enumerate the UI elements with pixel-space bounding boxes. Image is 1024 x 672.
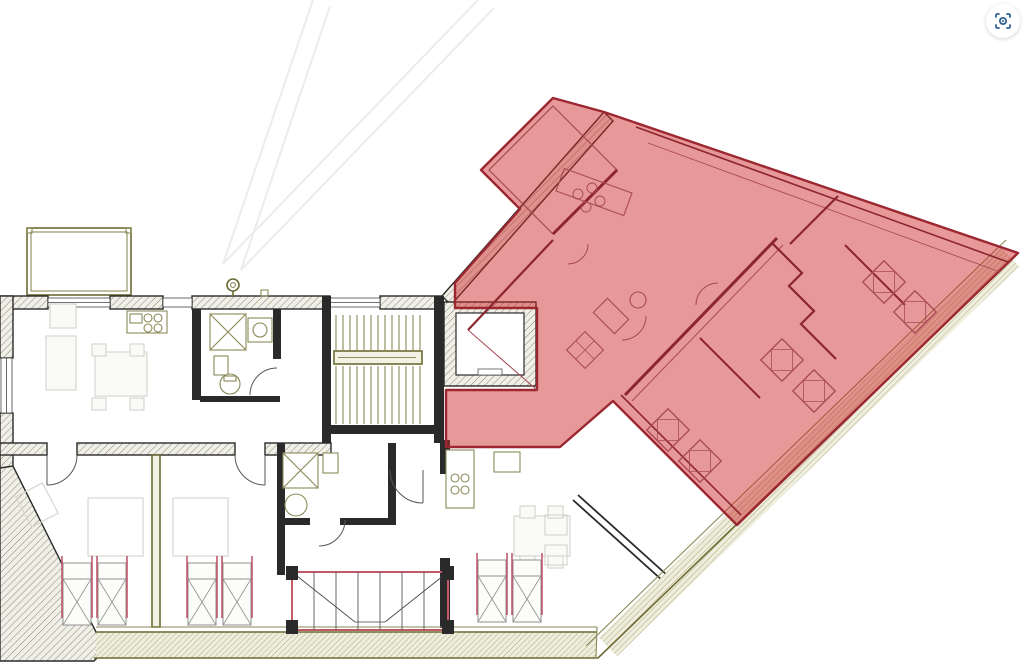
bed — [222, 556, 252, 625]
bed — [187, 556, 217, 625]
elevator — [444, 302, 536, 386]
bed — [62, 556, 92, 625]
lens-button[interactable] — [986, 4, 1020, 38]
furniture-top-left — [46, 304, 167, 410]
roof-outline — [223, 0, 494, 270]
bathroom-top — [210, 314, 277, 395]
stairs — [334, 315, 422, 424]
vent-icon — [227, 279, 268, 296]
void-opening — [286, 566, 454, 634]
bed — [477, 553, 507, 622]
floorplan-viewer — [0, 0, 1024, 672]
floor-plan-image — [0, 0, 1024, 672]
balcony-top-left — [27, 228, 131, 295]
apartment-bottom-middle — [283, 450, 570, 622]
bed — [512, 553, 542, 622]
lens-icon — [993, 11, 1013, 31]
bed — [97, 556, 127, 625]
